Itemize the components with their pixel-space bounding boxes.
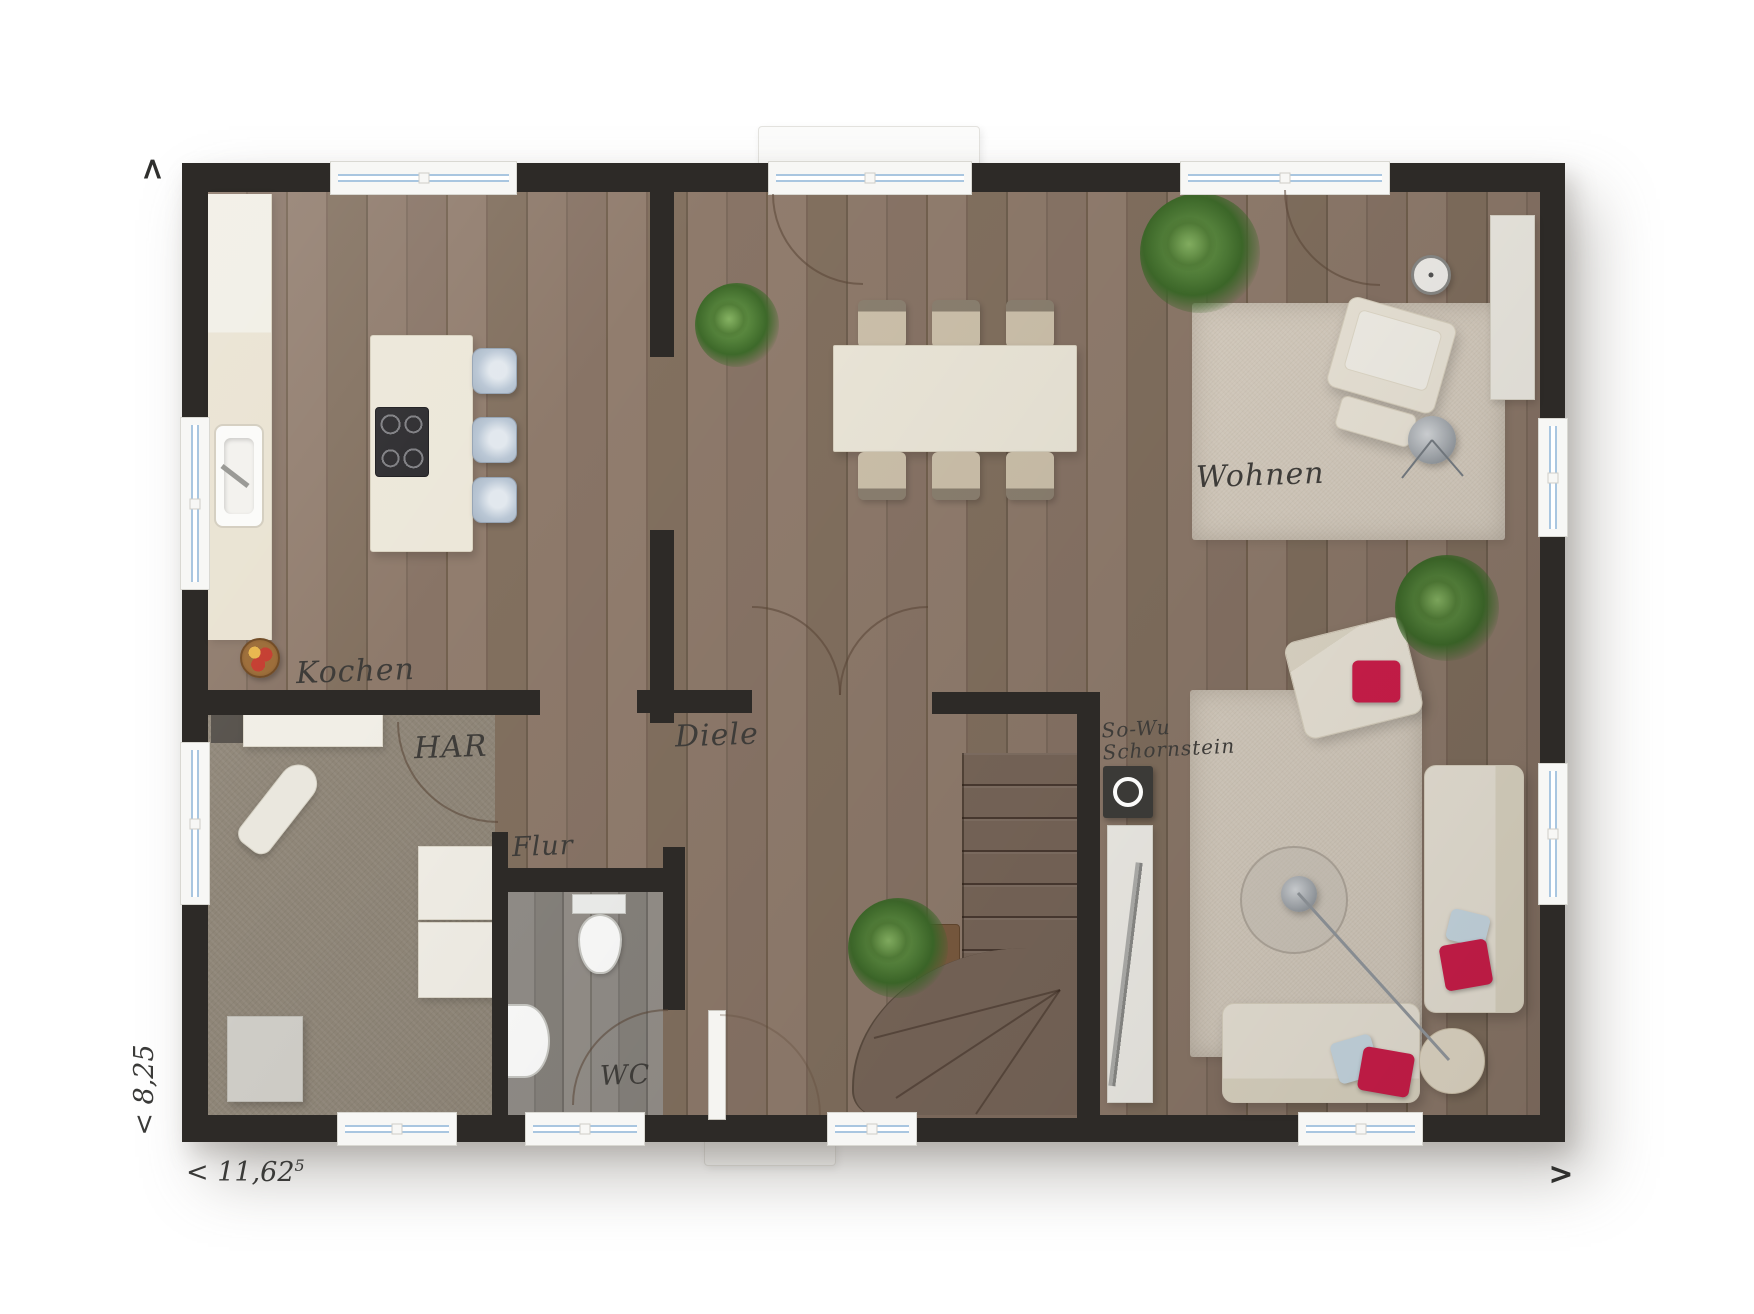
dining-chair — [858, 300, 906, 348]
terrace-door — [768, 161, 972, 195]
window-wohnen-bottom — [1298, 1112, 1423, 1146]
room-label-diele: Diele — [674, 717, 759, 755]
plant — [848, 898, 948, 998]
window-wohnen-right-upper — [1538, 418, 1568, 537]
window-har-left — [180, 742, 210, 905]
red-pillow — [1357, 1046, 1416, 1098]
window-wohnen-top — [1180, 161, 1390, 195]
window-har-bottom — [337, 1112, 457, 1146]
plant — [695, 283, 779, 367]
room-label-schornstein: So-Wu Schornstein — [1101, 713, 1236, 764]
bar-stool — [472, 417, 517, 463]
kitchen-counter — [208, 194, 272, 640]
red-pillow — [1352, 661, 1400, 703]
dining-table — [833, 345, 1077, 452]
dining-chair — [1006, 452, 1054, 500]
dining-chair — [858, 452, 906, 500]
room-label-flur: Flur — [511, 830, 574, 863]
har-unit-dark — [211, 713, 243, 743]
room-label-har: HAR — [413, 729, 488, 767]
laundry-basket — [227, 1016, 303, 1102]
washing-machine — [418, 846, 495, 920]
side-table — [1419, 1028, 1485, 1094]
window-entry-bottom — [827, 1112, 917, 1146]
wall-wc-right — [663, 847, 685, 1010]
pan-north-arrow[interactable]: > — [138, 152, 172, 186]
wall-stair-top — [932, 692, 1098, 714]
sideboard — [1490, 215, 1535, 400]
dimension-depth: < 8,25 — [129, 1010, 169, 1170]
arc-lamp-ball — [1281, 876, 1317, 912]
dimension-width-value: 11,62 — [217, 1157, 294, 1188]
plant — [1395, 555, 1499, 661]
dining-chair — [1006, 300, 1054, 348]
wall-clock — [1411, 255, 1451, 295]
wall-wc-top — [508, 868, 663, 892]
dining-chair — [932, 300, 980, 348]
window-wc-bottom — [525, 1112, 645, 1146]
wall-har-flur — [492, 832, 508, 1115]
dryer — [418, 922, 495, 998]
window-kitchen-left — [180, 417, 210, 590]
dimension-width-sup: 5 — [295, 1156, 305, 1175]
window-kitchen-top — [330, 161, 517, 195]
room-label-wc: WC — [599, 1059, 650, 1092]
room-label-wohnen: Wohnen — [1195, 456, 1325, 495]
entrance-sill — [704, 1138, 836, 1166]
toilet-tank — [572, 894, 626, 914]
ironing-board — [246, 758, 318, 858]
terrace-sill — [758, 126, 980, 166]
front-door-leaf — [708, 1010, 726, 1120]
har-shelf — [243, 710, 383, 747]
dining-chair — [932, 452, 980, 500]
cooktop — [375, 407, 429, 477]
chimney — [1103, 766, 1153, 818]
wall-diele-left — [637, 690, 752, 713]
wall-kitchen-stub-top — [650, 192, 674, 357]
fruit-bowl — [240, 638, 280, 678]
bar-stool — [472, 348, 517, 394]
pan-east-arrow[interactable]: > — [1544, 1160, 1578, 1194]
dimension-width-prefix: < — [186, 1157, 209, 1188]
wall-har-top — [208, 690, 540, 715]
bar-stool — [472, 477, 517, 523]
kitchen-sink — [214, 424, 264, 528]
floor-lamp — [1408, 416, 1456, 464]
window-wohnen-right-lower — [1538, 763, 1568, 905]
plant-large — [1140, 193, 1260, 313]
room-label-kochen: Kochen — [295, 652, 415, 691]
floorplan-canvas: Kochen HAR Flur Diele WC Wohnen So-Wu Sc… — [0, 0, 1754, 1314]
red-pillow — [1438, 938, 1493, 992]
dimension-width: < 11,625 — [186, 1156, 305, 1188]
wall-stair-right — [1077, 692, 1100, 1115]
